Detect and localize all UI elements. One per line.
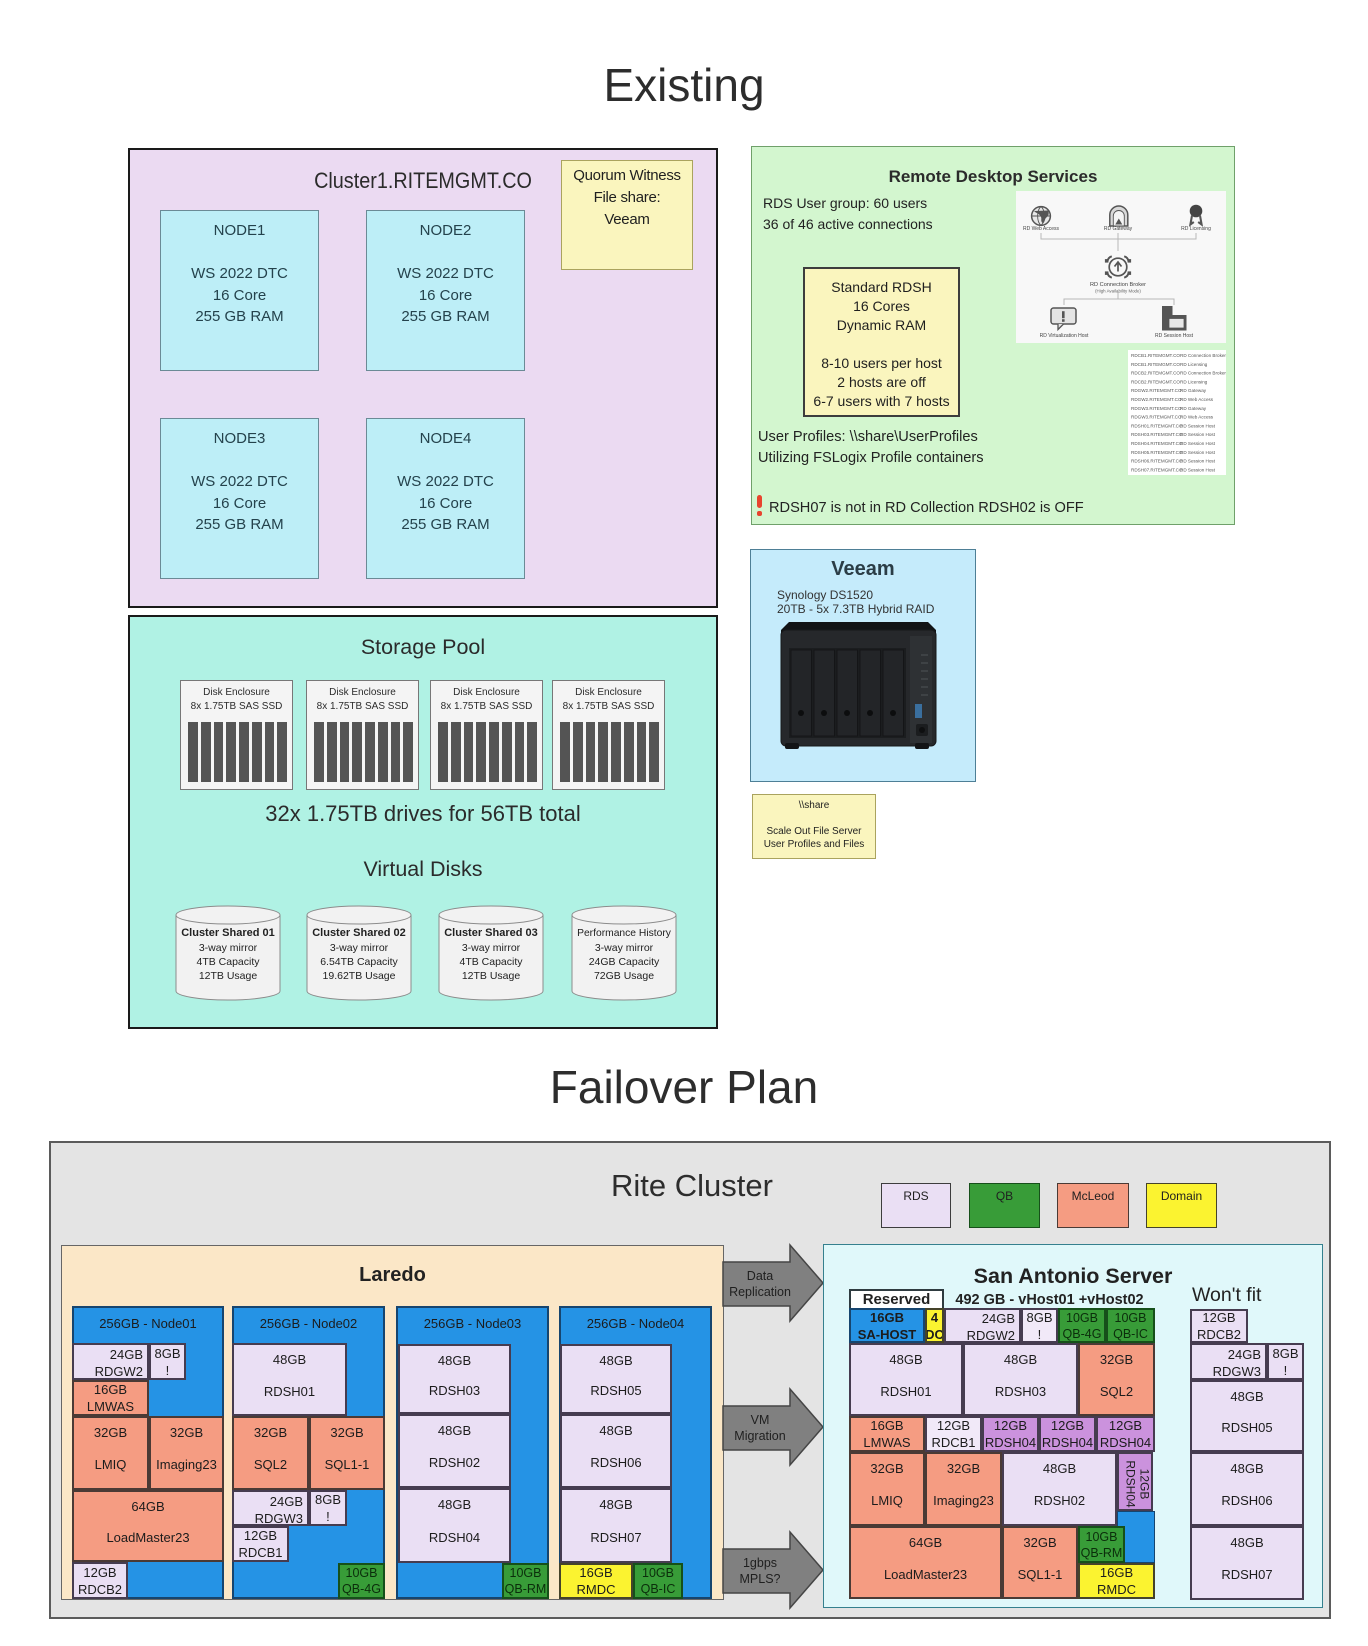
svg-text:Migration: Migration [734, 1429, 785, 1443]
svg-text:VM: VM [751, 1413, 770, 1427]
svg-text:Data: Data [747, 1269, 773, 1283]
svg-text:1gbps: 1gbps [743, 1556, 777, 1570]
svg-text:Replication: Replication [729, 1285, 791, 1299]
svg-text:MPLS?: MPLS? [740, 1572, 781, 1586]
